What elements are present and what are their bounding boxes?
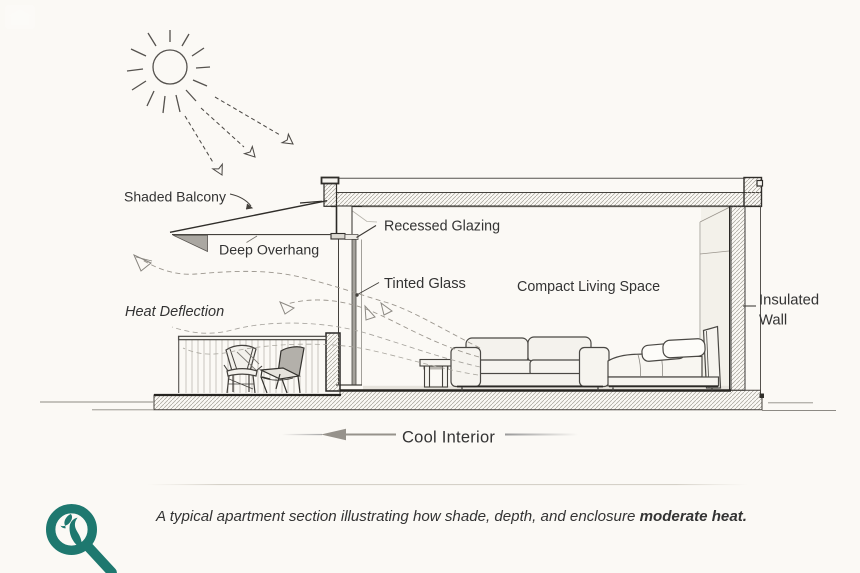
svg-text:Deep Overhang: Deep Overhang (219, 243, 319, 259)
svg-text:Insulated: Insulated (759, 293, 819, 309)
svg-text:Compact Living Space: Compact Living Space (517, 279, 660, 295)
svg-text:Wall: Wall (759, 313, 787, 329)
svg-text:Recessed Glazing: Recessed Glazing (384, 219, 500, 235)
svg-text:Shaded Balcony: Shaded Balcony (124, 189, 226, 205)
svg-text:Tinted Glass: Tinted Glass (384, 276, 466, 292)
svg-text:A typical apartment section il: A typical apartment section illustrating… (155, 508, 747, 525)
svg-text:Heat Deflection: Heat Deflection (125, 304, 224, 320)
svg-text:Cool Interior: Cool Interior (402, 429, 495, 447)
